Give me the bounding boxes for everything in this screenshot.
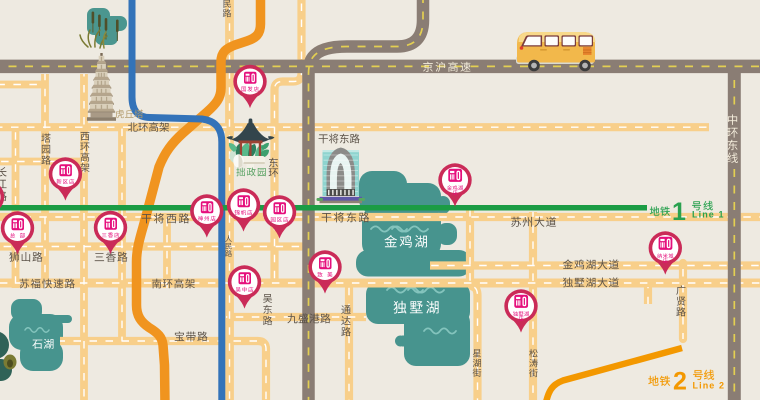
svg-text:Line 1: Line 1 [692, 210, 725, 220]
svg-text:2: 2 [673, 368, 687, 396]
svg-text:1: 1 [672, 198, 686, 226]
svg-text:Line 2: Line 2 [693, 381, 726, 391]
